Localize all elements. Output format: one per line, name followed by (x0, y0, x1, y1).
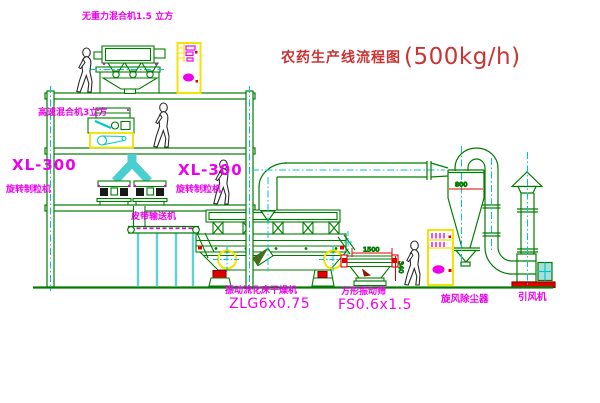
belt-conveyor-label: 皮带输送机 (131, 213, 176, 222)
title-capacity: (500kg/h) (404, 44, 521, 70)
title-text: 农药生产线流程图 (281, 47, 401, 67)
granulator-right-model-label: XL-300 (178, 163, 243, 178)
sieve-name-label: 方形振动筛 (341, 288, 386, 297)
dryer-model-label: ZLG6x0.75 (229, 297, 310, 311)
spring-mounts (213, 222, 339, 234)
fluid-bed-dryer (196, 210, 347, 286)
cyclone-diameter-dim: 800 (455, 181, 467, 189)
fan-label: 引风机 (518, 293, 547, 303)
granulator-right-name-label: 旋转制粒机 (176, 186, 221, 195)
induced-draft-fan (512, 152, 555, 288)
vibrating-sieve: 1500 340 (338, 231, 405, 286)
granulator-right (133, 181, 167, 205)
dryer-name-label: 振动流化床干燥机 (225, 287, 297, 296)
control-cabinet-lower (428, 230, 453, 285)
person-figure (154, 103, 169, 147)
gravity-mixer (90, 46, 165, 94)
person-figure (405, 241, 420, 285)
discharge-chute (115, 154, 149, 181)
control-cabinet-upper (178, 43, 201, 93)
gravity-mixer-label: 无重力混合机1.5 立方 (82, 13, 173, 22)
high-speed-mixer-label: 高速混合机3立方 (38, 109, 107, 118)
granulator-left (97, 181, 131, 205)
diagram-title: 农药生产线流程图 (500kg/h) (281, 44, 521, 70)
sieve-length-dim: 1500 (363, 246, 380, 254)
person-figure (77, 48, 92, 92)
cabinet-knob-icon (183, 74, 194, 82)
sieve-height-dim: 340 (397, 261, 405, 273)
granulator-left-model-label: XL-300 (12, 158, 77, 173)
granulator-left-name-label: 旋转制粒机 (6, 186, 51, 195)
sieve-model-label: FS0.6x1.5 (338, 298, 412, 312)
cyclone-label: 旋风除尘器 (441, 295, 489, 305)
belt-conveyor (128, 227, 200, 287)
flow-diagram-page: 800 (0, 0, 600, 403)
cabinet-knob-icon (433, 265, 445, 273)
